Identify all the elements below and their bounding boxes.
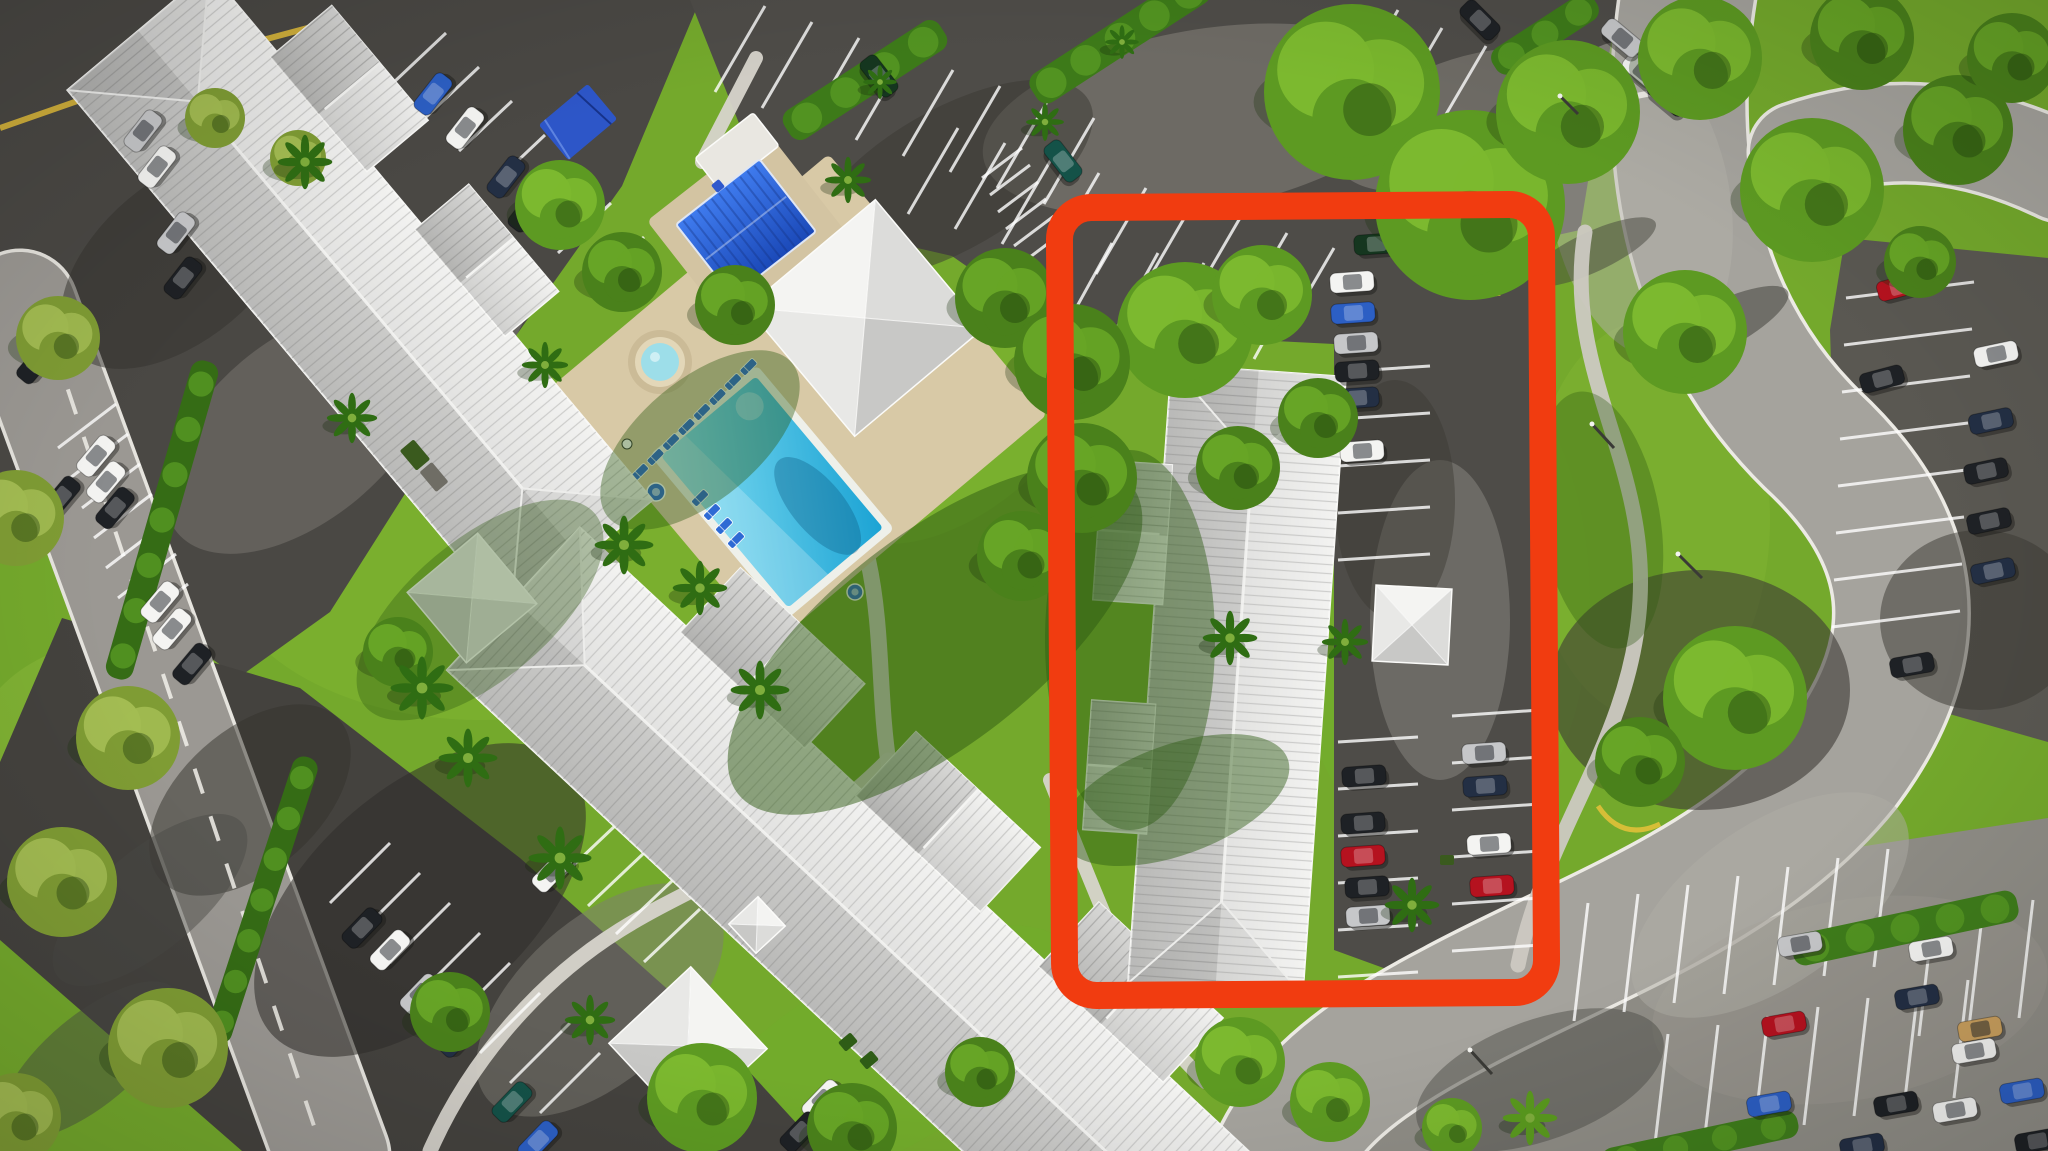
aerial-photo	[0, 0, 2048, 1151]
photo-vignette	[0, 0, 2048, 1151]
aerial-photo-screenshot	[0, 0, 2048, 1151]
